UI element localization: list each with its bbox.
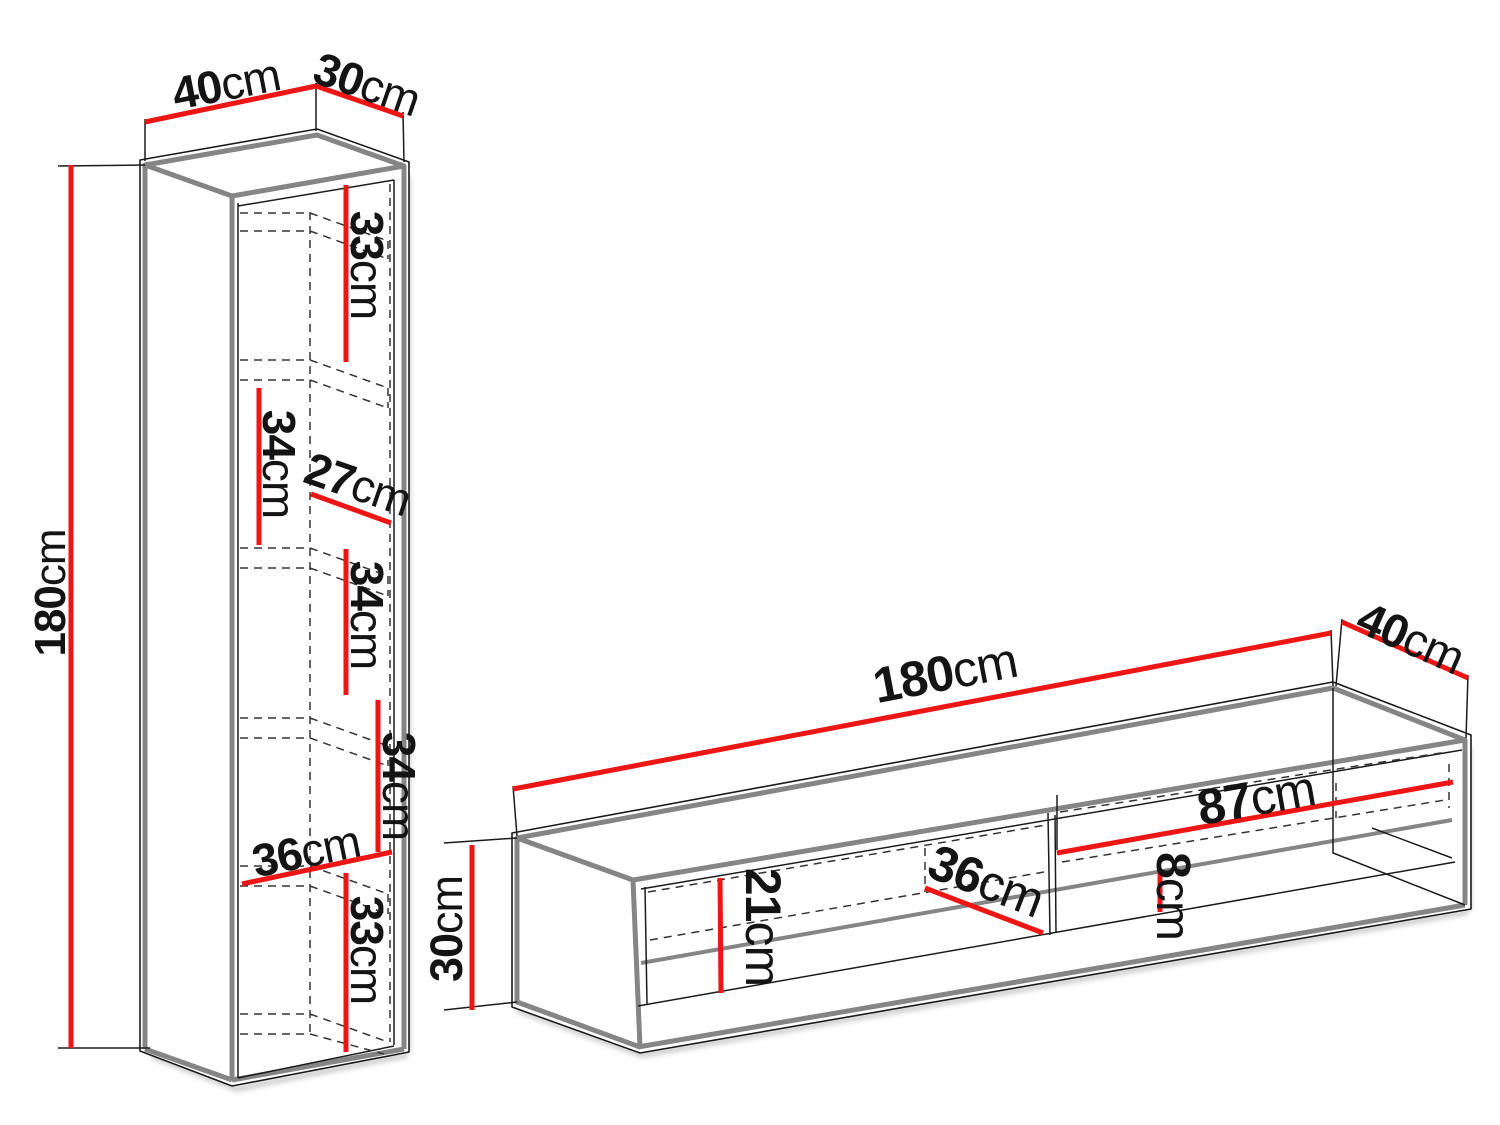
tv-width-label: 180cm bbox=[868, 632, 1021, 714]
cabinet-drawing: 40cm 30cm 180cm 33cm 34cm 27cm 34cm 34cm… bbox=[26, 42, 427, 1089]
cabinet-width-label: 40cm bbox=[168, 48, 284, 120]
cabinet-shelf-5-label: 33cm bbox=[341, 896, 393, 1005]
tv-panel-height-label: 8cm bbox=[1147, 852, 1200, 940]
cabinet-depth-label: 30cm bbox=[307, 42, 427, 126]
diagram-canvas: 40cm 30cm 180cm 33cm 34cm 27cm 34cm 34cm… bbox=[0, 0, 1500, 1125]
tv-depth-label: 40cm bbox=[1350, 590, 1473, 684]
cabinet-shelf-3-label: 34cm bbox=[341, 561, 393, 670]
tv-height-label: 30cm bbox=[421, 876, 472, 982]
furniture-dimension-diagram: 40cm 30cm 180cm 33cm 34cm 27cm 34cm 34cm… bbox=[0, 0, 1500, 1125]
cabinet-shelf-4-label: 34cm bbox=[373, 732, 425, 841]
tv-niche-height-dimension-line bbox=[720, 878, 721, 993]
tv-niche-height-label: 21cm bbox=[735, 868, 791, 986]
cabinet-shelf-1-label: 33cm bbox=[341, 211, 393, 320]
cabinet-height-label: 180cm bbox=[26, 529, 75, 656]
cabinet-shelf-2-label: 34cm bbox=[253, 410, 305, 519]
tv-stand-drawing: 180cm 40cm 30cm 21cm 87cm 36cm 8cm bbox=[421, 590, 1473, 1055]
